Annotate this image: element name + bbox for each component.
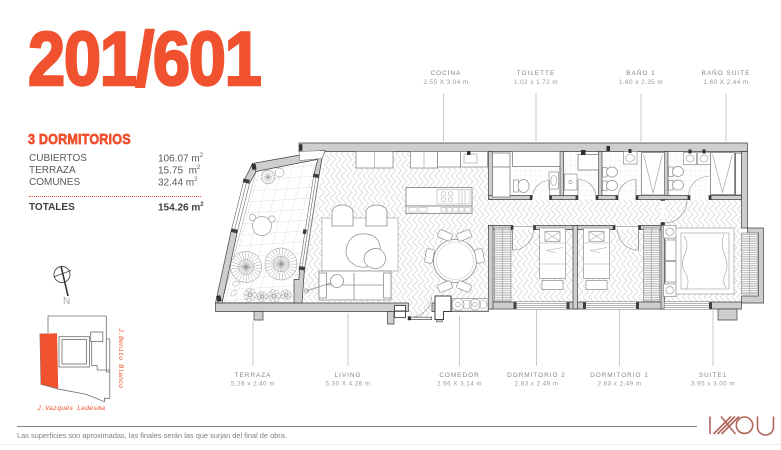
svg-text:COCINA: COCINA bbox=[431, 70, 462, 77]
svg-text:DORMITORIO 2: DORMITORIO 2 bbox=[507, 372, 566, 379]
svg-text:BAÑO 1: BAÑO 1 bbox=[626, 68, 655, 77]
svg-text:TOILETTE: TOILETTE bbox=[517, 70, 555, 77]
svg-text:2.55 X 3.04 m: 2.55 X 3.04 m bbox=[423, 79, 468, 86]
svg-text:SUITE1: SUITE1 bbox=[699, 372, 727, 379]
svg-text:J.Vazqués Ledesma: J.Vazqués Ledesma bbox=[37, 405, 105, 413]
svg-text:COMEDOR: COMEDOR bbox=[439, 372, 479, 379]
svg-text:2.83 x 2.49 m: 2.83 x 2.49 m bbox=[515, 381, 559, 388]
svg-text:1.60 X 2.44 m: 1.60 X 2.44 m bbox=[703, 79, 748, 86]
svg-text:1.02 x 1.72 m: 1.02 x 1.72 m bbox=[514, 79, 558, 86]
svg-text:1.60 x 2.35 m: 1.60 x 2.35 m bbox=[619, 79, 663, 86]
svg-text:5.30 X 4.26 m: 5.30 X 4.26 m bbox=[325, 381, 370, 388]
svg-text:2.96 X 3.14 m: 2.96 X 3.14 m bbox=[437, 381, 482, 388]
svg-text:2.83 x 2.49 m: 2.83 x 2.49 m bbox=[598, 381, 642, 388]
svg-text:3.95 x 3.00 m: 3.95 x 3.00 m bbox=[691, 381, 735, 388]
svg-text:TERRAZA: TERRAZA bbox=[235, 372, 272, 379]
svg-text:DORMITORIO 1: DORMITORIO 1 bbox=[590, 372, 649, 379]
svg-text:J.Benito Blanco: J.Benito Blanco bbox=[116, 328, 124, 388]
svg-text:5.26 x 2.40 m: 5.26 x 2.40 m bbox=[231, 381, 275, 388]
svg-text:N: N bbox=[63, 296, 70, 307]
svg-text:LIVING: LIVING bbox=[335, 372, 362, 379]
svg-text:BAÑO SUITE: BAÑO SUITE bbox=[702, 68, 751, 77]
